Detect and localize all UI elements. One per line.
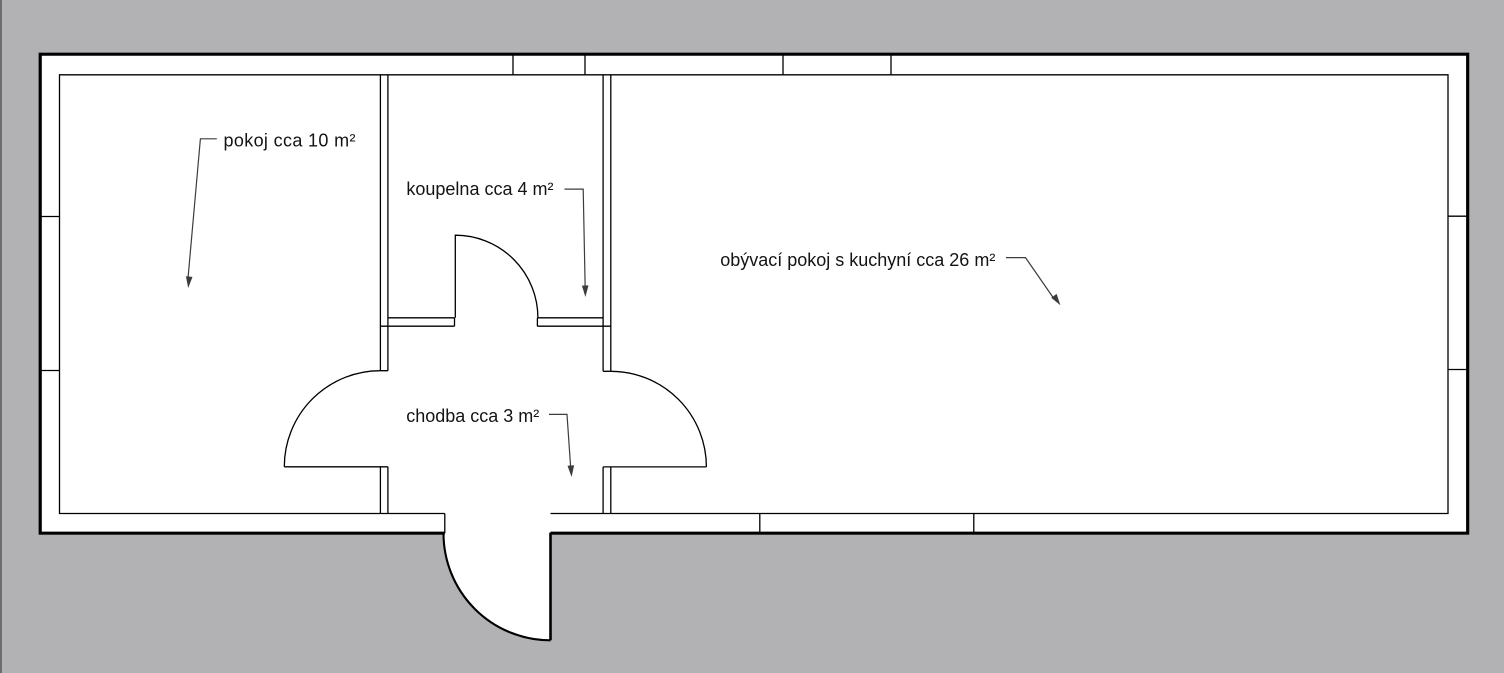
- svg-text:pokoj cca 10 m²: pokoj cca 10 m²: [224, 131, 356, 151]
- svg-text:obývací pokoj s kuchyní cca 26: obývací pokoj s kuchyní cca 26 m²: [720, 250, 995, 270]
- svg-text:chodba cca 3 m²: chodba cca 3 m²: [406, 406, 539, 426]
- svg-text:koupelna cca 4 m²: koupelna cca 4 m²: [406, 179, 553, 199]
